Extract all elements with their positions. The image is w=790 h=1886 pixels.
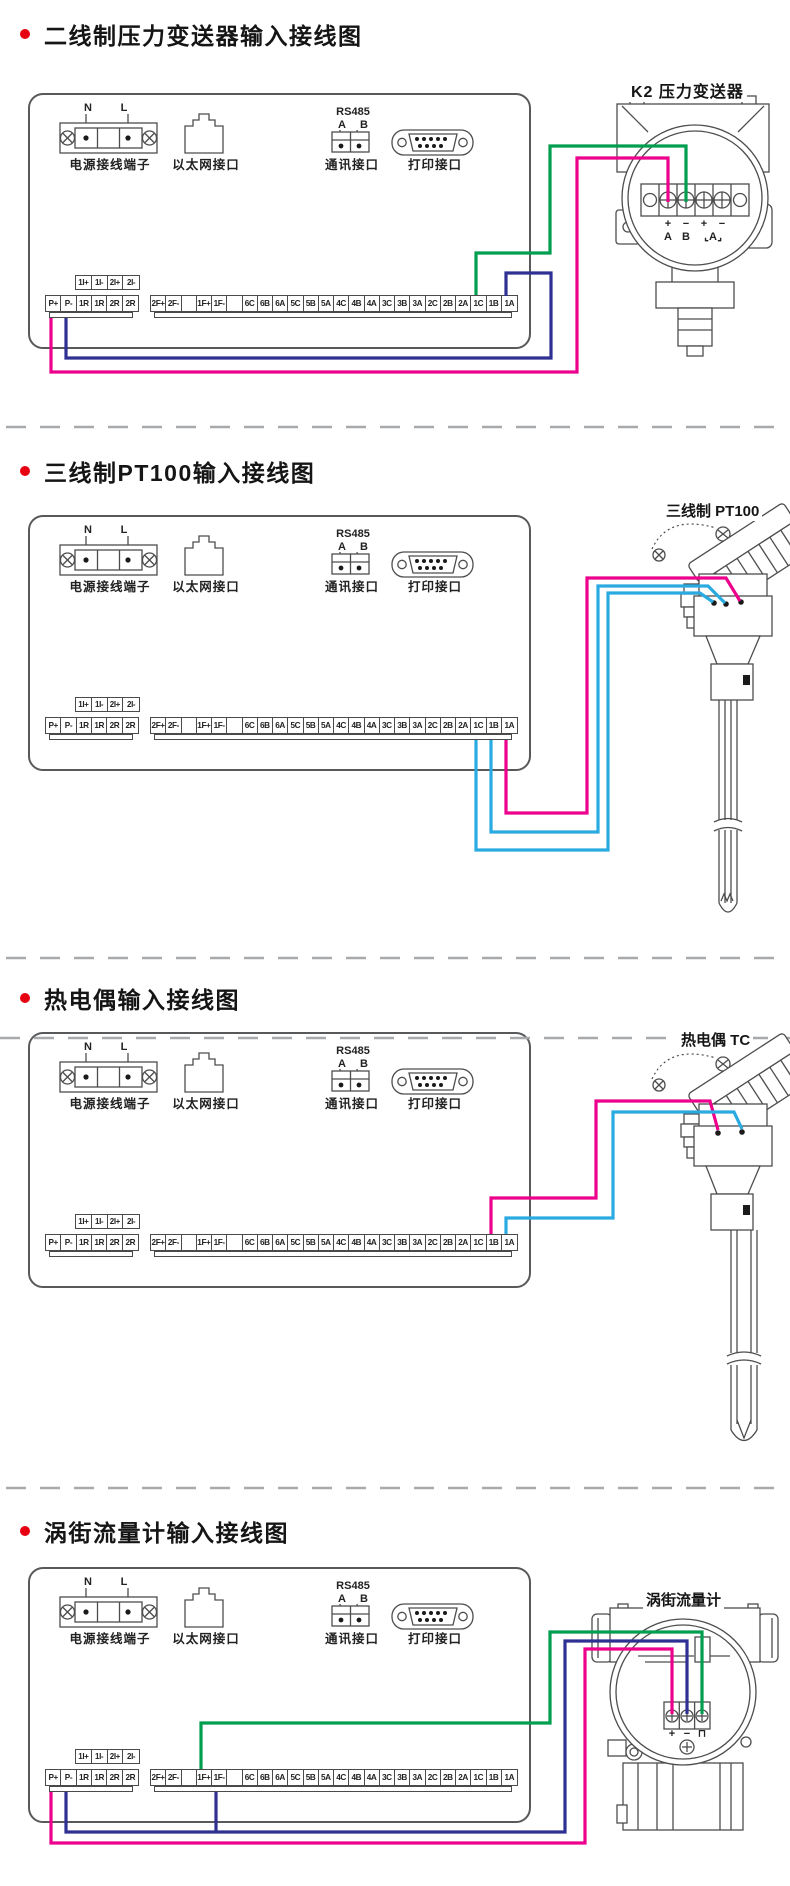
strip-current-outputs: 1I+1I-2I+2I- [75,275,140,290]
strip-rail [154,312,512,318]
wire-magenta-1a-to-pt100 [506,578,740,813]
rs485-label: RS485 [323,1046,383,1057]
terminal-cell: 4B [349,718,364,733]
terminal-cell: 5C [288,1770,303,1785]
terminal-cell: 6A [273,1770,288,1785]
terminal-cell: 2R [107,1235,122,1250]
terminal-cell [227,296,242,311]
strip-rail [154,1786,512,1792]
print-port-caption: 打印接口 [385,581,485,594]
terminal-cell: 6B [258,1235,273,1250]
terminal-cell: 2R [123,1770,138,1785]
terminal-cell: 3C [380,296,395,311]
terminal-cell: 3B [395,1770,410,1785]
terminal-cell: P- [61,296,76,311]
bullet-icon [20,993,30,1003]
terminal-cell: 2F- [166,1235,181,1250]
terminal-cell: 1I- [92,698,108,711]
terminal-cell: 1F- [212,296,227,311]
terminal-cell: 3B [395,718,410,733]
rs485-ab-labels: A B [338,1594,368,1605]
rs485-a-label: A [338,120,346,131]
recorder-panel-3: N L RS485 A B 电源接线端子 以太网接口 通讯接口 打印接口 1I+… [28,1032,531,1288]
terminal-cell: 1A [502,1235,517,1250]
section-title-text: 热电偶输入接线图 [44,981,240,1015]
terminal-cell: 5C [288,1235,303,1250]
terminal-cell: 5C [288,718,303,733]
strip-inputs: 2F+2F-1F+1F-6C6B6A5C5B5A4C4B4A3C3B3A2C2B… [150,295,518,312]
terminal-cell: 3C [380,1770,395,1785]
recorder-panel-4: N L RS485 A B 电源接线端子 以太网接口 通讯接口 打印接口 1I+… [28,1567,531,1823]
terminal-cell: 6B [258,296,273,311]
terminal-cell: 4B [349,1235,364,1250]
terminal-cell: 1A [502,718,517,733]
strip-rail [49,1251,133,1257]
terminal-cell: 2R [107,718,122,733]
ethernet-port-caption: 以太网接口 [156,581,256,594]
terminal-cell: 1R [92,1235,107,1250]
strip-rail [154,734,512,740]
power-n-label: N [82,103,94,114]
terminal-cell: 5A [319,296,334,311]
strip-rail [49,1786,133,1792]
terminal-cell: 4B [349,1770,364,1785]
rs485-label: RS485 [323,529,383,540]
power-n-label: N [82,525,94,536]
strip-current-outputs: 1I+1I-2I+2I- [75,1214,140,1229]
section-title-4: 涡街流量计输入接线图 [20,1516,289,1546]
wire-cyan-1a-to-tc [506,1112,742,1234]
terminal-cell: 2C [426,1235,441,1250]
terminal-cell: 2I- [123,1215,139,1228]
terminal-cell: 1F- [212,1770,227,1785]
transmitter-terminal-plus2: + [697,219,711,230]
terminal-cell: 2I+ [108,698,124,711]
rs485-ab-labels: A B [338,120,368,131]
terminal-cell: 3A [410,718,425,733]
transmitter-terminal-minus1: − [679,219,693,230]
terminal-cell: 6A [273,1235,288,1250]
terminal-cell: 6B [258,718,273,733]
terminal-cell: P- [61,1235,76,1250]
power-n-label: N [82,1577,94,1588]
rs485-label: RS485 [323,1581,383,1592]
power-terminal-caption: 电源接线端子 [50,1633,170,1646]
terminal-cell: 2I- [123,276,139,289]
strip-power-relay: P+P-1R1R2R2R [45,295,139,312]
terminal-cell: 2R [107,296,122,311]
terminal-cell: 1B [487,296,502,311]
ethernet-port-caption: 以太网接口 [156,1098,256,1111]
flowmeter-terminal-minus: − [680,1729,694,1740]
print-port-caption: 打印接口 [385,159,485,172]
terminal-cell: 1C [471,296,486,311]
terminal-cell: 2B [441,1770,456,1785]
ethernet-port-caption: 以太网接口 [156,1633,256,1646]
terminal-cell: P+ [46,1235,61,1250]
terminal-cell: 1A [502,296,517,311]
power-terminal-caption: 电源接线端子 [50,581,170,594]
terminal-cell: 1R [77,718,92,733]
bullet-icon [20,466,30,476]
terminal-cell: 3B [395,296,410,311]
section-title-1: 二线制压力变送器输入接线图 [20,19,363,49]
strip-rail [49,734,133,740]
terminal-cell: 2I+ [108,1750,124,1763]
terminal-cell [182,1235,197,1250]
strip-current-outputs: 1I+1I-2I+2I- [75,697,140,712]
terminal-cell: 5B [304,718,319,733]
terminal-cell: 2F- [166,1770,181,1785]
terminal-cell [227,1770,242,1785]
power-n-label: N [82,1042,94,1053]
device-label-pressure-transmitter: K2 压力变送器 [628,78,747,102]
terminal-cell: 1I+ [76,1750,92,1763]
terminal-cell: 2B [441,718,456,733]
power-l-label: L [118,103,130,114]
transmitter-terminal-b: B [679,232,693,243]
strip-inputs: 2F+2F-1F+1F-6C6B6A5C5B5A4C4B4A3C3B3A2C2B… [150,1769,518,1786]
recorder-panel-1: N L RS485 A B 电源接线端子 以太网接口 通讯接口 打印接口 1I+… [28,93,531,349]
flowmeter-terminal-plus: + [665,1729,679,1740]
rs485-b-label: B [360,1594,368,1605]
rs485-b-label: B [360,1059,368,1070]
terminal-cell: 2C [426,718,441,733]
rs485-b-label: B [360,542,368,553]
terminal-cell: 2C [426,296,441,311]
terminal-cell: 1F+ [197,1770,212,1785]
terminal-cell: 3C [380,718,395,733]
terminal-cell: 1B [487,1770,502,1785]
strip-inputs: 2F+2F-1F+1F-6C6B6A5C5B5A4C4B4A3C3B3A2C2B… [150,1234,518,1251]
terminal-cell: 1F+ [197,718,212,733]
terminal-cell: 2B [441,296,456,311]
device-label-pt100: 三线制 PT100 [663,500,762,521]
bullet-icon [20,1526,30,1536]
terminal-cell: 2A [456,1770,471,1785]
section-title-text: 涡街流量计输入接线图 [44,1514,289,1548]
vortex-flowmeter-drawing [592,1604,778,1830]
terminal-cell: 2I+ [108,276,124,289]
terminal-cell [227,718,242,733]
section-title-text: 二线制压力变送器输入接线图 [44,17,363,51]
terminal-cell: 2R [123,1235,138,1250]
rs485-ab-labels: A B [338,1059,368,1070]
print-port-caption: 打印接口 [385,1098,485,1111]
terminal-cell: 1R [77,1235,92,1250]
power-l-label: L [118,1042,130,1053]
transmitter-terminal-a: A [661,232,675,243]
strip-power-relay: P+P-1R1R2R2R [45,1769,139,1786]
terminal-cell: 2R [107,1770,122,1785]
terminal-cell: 2F+ [151,718,166,733]
terminal-cell: 2I+ [108,1215,124,1228]
terminal-cell: 6C [243,718,258,733]
terminal-cell: 5C [288,296,303,311]
terminal-cell: 2I- [123,698,139,711]
terminal-cell: 1F- [212,1235,227,1250]
rs485-a-label: A [338,542,346,553]
terminal-cell: 1R [92,1770,107,1785]
power-l-label: L [118,1577,130,1588]
flowmeter-terminal-pulse: ⊓ [695,1729,709,1740]
terminal-cell: P+ [46,718,61,733]
terminal-cell: 1C [471,1770,486,1785]
terminal-cell: 6A [273,718,288,733]
strip-power-relay: P+P-1R1R2R2R [45,1234,139,1251]
bullet-icon [20,29,30,39]
terminal-cell: 5B [304,1770,319,1785]
terminal-cell: 6C [243,1235,258,1250]
power-terminal-caption: 电源接线端子 [50,1098,170,1111]
device-label-thermocouple: 热电偶 TC [678,1029,753,1050]
strip-inputs: 2F+2F-1F+1F-6C6B6A5C5B5A4C4B4A3C3B3A2C2B… [150,717,518,734]
terminal-cell: 5A [319,718,334,733]
wiring-diagram-page: 二线制压力变送器输入接线图 三线制PT100输入接线图 热电偶输入接线图 涡街流… [0,0,790,1886]
rs485-b-label: B [360,120,368,131]
terminal-cell [182,296,197,311]
strip-rail [154,1251,512,1257]
terminal-cell: 1F- [212,718,227,733]
terminal-cell [227,1235,242,1250]
recorder-panel-2: N L RS485 A B 电源接线端子 以太网接口 通讯接口 打印接口 1I+… [28,515,531,771]
terminal-cell: 1R [77,296,92,311]
terminal-cell: 5A [319,1770,334,1785]
rs485-ab-labels: A B [338,542,368,553]
terminal-cell: 4A [365,296,380,311]
terminal-cell: 2F- [166,296,181,311]
terminal-cell: 1B [487,718,502,733]
terminal-cell: P+ [46,1770,61,1785]
terminal-cell: 2C [426,1770,441,1785]
rs485-a-label: A [338,1594,346,1605]
power-terminal-caption: 电源接线端子 [50,159,170,172]
terminal-cell: 5B [304,1235,319,1250]
terminal-cell: 1F+ [197,1235,212,1250]
terminal-cell: 1I- [92,1215,108,1228]
terminal-cell: 3A [410,296,425,311]
terminal-cell: 4C [334,296,349,311]
terminal-cell [182,718,197,733]
rs485-label: RS485 [323,107,383,118]
terminal-cell: 4C [334,1235,349,1250]
terminal-cell: 1R [92,718,107,733]
terminal-cell: 1I+ [76,698,92,711]
transmitter-terminal-minus2: − [715,219,729,230]
terminal-cell: 5B [304,296,319,311]
terminal-cell: 3B [395,1235,410,1250]
section-title-text: 三线制PT100输入接线图 [44,454,315,488]
terminal-cell: 6B [258,1770,273,1785]
terminal-cell: 3C [380,1235,395,1250]
terminal-cell: 2F+ [151,1235,166,1250]
ethernet-port-caption: 以太网接口 [156,159,256,172]
terminal-cell [182,1770,197,1785]
terminal-cell: 4A [365,718,380,733]
terminal-cell: 4B [349,296,364,311]
terminal-cell: 4A [365,1235,380,1250]
thermocouple-drawing [652,1028,790,1440]
device-label-vortex-flowmeter: 涡街流量计 [643,1589,724,1610]
terminal-cell: 6A [273,296,288,311]
terminal-cell: 1R [77,1770,92,1785]
section-title-2: 三线制PT100输入接线图 [20,456,315,486]
terminal-cell: 2R [123,296,138,311]
terminal-cell: 2F+ [151,296,166,311]
terminal-cell: 5A [319,1235,334,1250]
print-port-caption: 打印接口 [385,1633,485,1646]
terminal-cell: 3A [410,1770,425,1785]
power-l-label: L [118,525,130,536]
terminal-cell: 2B [441,1235,456,1250]
terminal-cell: 3A [410,1235,425,1250]
terminal-cell: 2A [456,1235,471,1250]
terminal-cell: 4A [365,1770,380,1785]
terminal-cell: 1A [502,1770,517,1785]
terminal-cell: 1C [471,718,486,733]
terminal-cell: 4C [334,1770,349,1785]
terminal-cell: 6C [243,1770,258,1785]
terminal-cell: 1I+ [76,276,92,289]
terminal-cell: P+ [46,296,61,311]
terminal-cell: 2A [456,296,471,311]
terminal-cell: P- [61,1770,76,1785]
terminal-cell: 1I- [92,1750,108,1763]
terminal-cell: 1R [92,296,107,311]
terminal-cell: 2R [123,718,138,733]
terminal-cell: 4C [334,718,349,733]
terminal-cell: P- [61,718,76,733]
terminal-cell: 2F- [166,718,181,733]
strip-power-relay: P+P-1R1R2R2R [45,717,139,734]
terminal-cell: 1C [471,1235,486,1250]
terminal-cell: 6C [243,296,258,311]
pressure-transmitter-drawing [616,96,772,356]
terminal-cell: 1I+ [76,1215,92,1228]
terminal-cell: 1F+ [197,296,212,311]
pt100-drawing [652,498,790,912]
terminal-cell: 1I- [92,276,108,289]
strip-rail [49,312,133,318]
section-title-3: 热电偶输入接线图 [20,983,240,1013]
terminal-cell: 2I- [123,1750,139,1763]
terminal-cell: 2F+ [151,1770,166,1785]
transmitter-terminal-plus1: + [661,219,675,230]
strip-current-outputs: 1I+1I-2I+2I- [75,1749,140,1764]
terminal-cell: 2A [456,718,471,733]
rs485-a-label: A [338,1059,346,1070]
terminal-cell: 1B [487,1235,502,1250]
transmitter-terminal-loop: ⌞A⌟ [698,232,728,243]
